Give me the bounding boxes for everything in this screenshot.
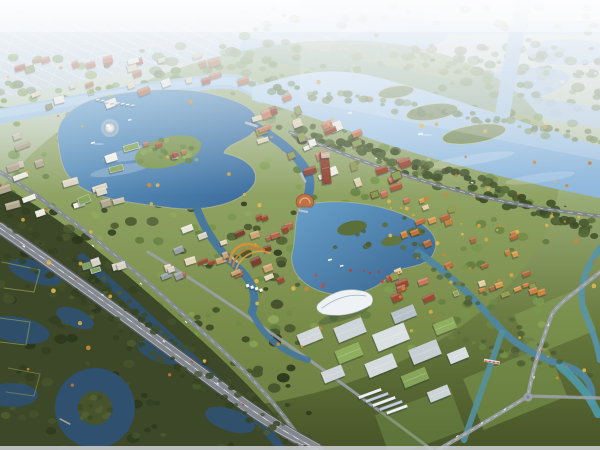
bottom-edge-strip [0,446,600,450]
masterplan-svg [0,0,600,450]
aerial-masterplan-rendering [0,0,600,450]
east-road [528,396,600,398]
